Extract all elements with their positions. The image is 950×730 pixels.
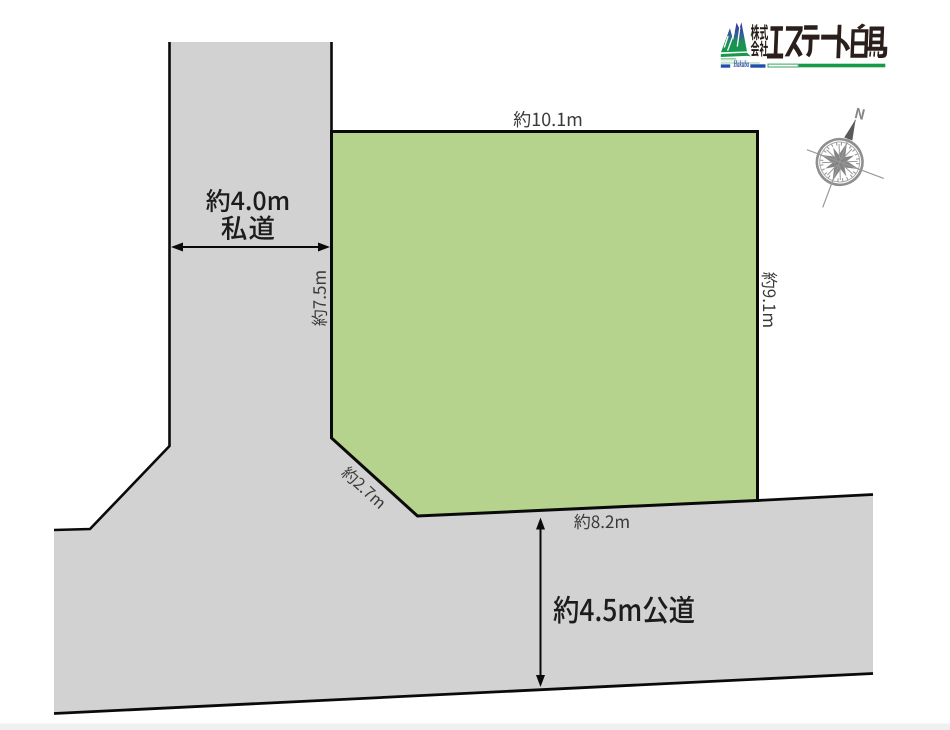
svg-text:Hakuba: Hakuba	[733, 59, 749, 69]
